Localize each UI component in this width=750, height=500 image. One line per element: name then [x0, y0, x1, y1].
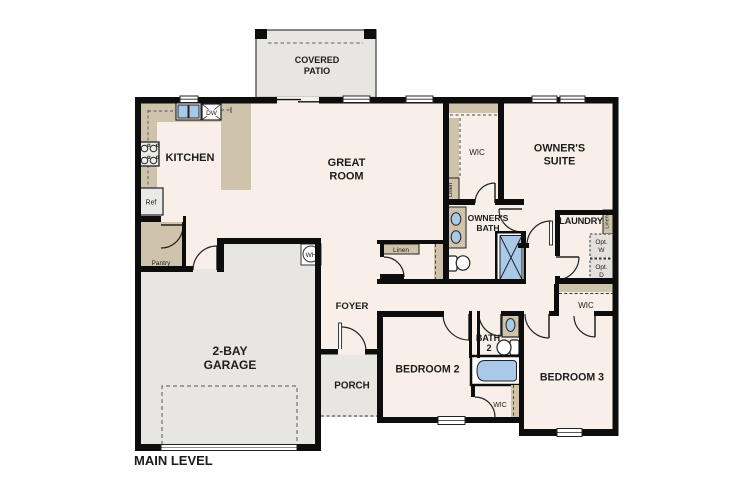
svg-text:OWNER'S: OWNER'S: [534, 143, 585, 155]
svg-text:Pantry: Pantry: [152, 260, 172, 267]
svg-text:LAUNDRY: LAUNDRY: [559, 216, 604, 226]
svg-text:D: D: [599, 272, 604, 279]
svg-text:W: W: [598, 247, 605, 254]
svg-text:COVERED: COVERED: [295, 55, 340, 65]
svg-text:SUITE: SUITE: [544, 156, 576, 168]
svg-text:PORCH: PORCH: [334, 381, 369, 392]
svg-text:GARAGE: GARAGE: [204, 358, 257, 372]
svg-text:WIC: WIC: [493, 402, 507, 409]
svg-text:2: 2: [486, 343, 491, 353]
svg-text:DW: DW: [206, 110, 218, 117]
svg-text:KITCHEN: KITCHEN: [166, 152, 215, 164]
svg-text:Opt.: Opt.: [595, 239, 607, 246]
svg-text:WIC: WIC: [578, 301, 594, 310]
svg-text:PATIO: PATIO: [304, 66, 330, 76]
svg-text:Linen: Linen: [605, 215, 611, 228]
svg-text:ROOM: ROOM: [329, 171, 363, 183]
svg-text:BEDROOM 2: BEDROOM 2: [395, 364, 459, 376]
svg-text:WIC: WIC: [469, 148, 485, 157]
svg-text:GREAT: GREAT: [328, 157, 366, 169]
svg-text:BEDROOM 3: BEDROOM 3: [540, 372, 604, 384]
svg-text:2-BAY: 2-BAY: [213, 344, 248, 358]
svg-text:FOYER: FOYER: [336, 301, 369, 312]
svg-text:Linen: Linen: [393, 247, 409, 254]
svg-text:Ref: Ref: [146, 200, 157, 207]
svg-text:MAIN LEVEL: MAIN LEVEL: [134, 453, 213, 468]
svg-text:Opt.: Opt.: [595, 264, 607, 271]
